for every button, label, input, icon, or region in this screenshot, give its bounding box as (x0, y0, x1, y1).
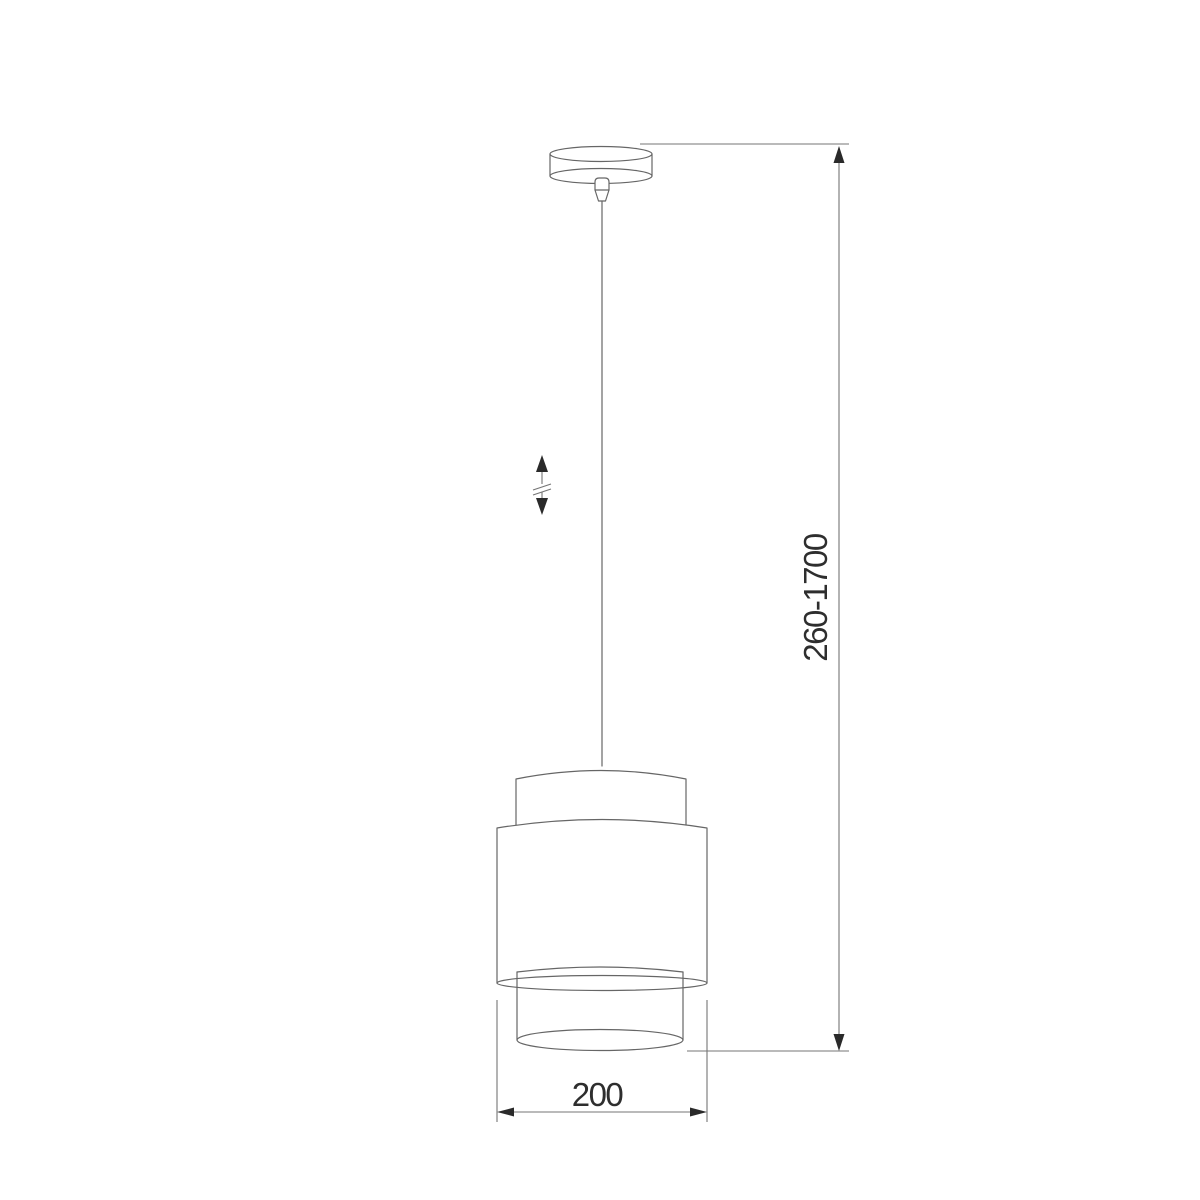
height-dimension-label: 260-1700 (797, 533, 834, 662)
drawing-canvas: 260-1700 (0, 0, 1200, 1200)
width-dim-arrow-left-icon (497, 1108, 514, 1117)
width-dimension: 200 (497, 1000, 707, 1122)
adjustment-arrow-up-icon (536, 455, 548, 472)
cord-grip (595, 178, 609, 201)
canopy-top-rim (550, 147, 652, 162)
adjustment-break-slash-top (533, 484, 551, 490)
pendant-lamp-dimension-drawing: 260-1700 (0, 0, 1200, 1200)
width-dimension-label: 200 (572, 1076, 624, 1113)
lampshade-inner-diffuser (517, 967, 683, 1051)
outer-drum-body (497, 820, 707, 984)
adjustment-arrow-down-icon (536, 498, 548, 515)
height-dim-arrow-down-icon (834, 1034, 845, 1051)
height-adjustment-arrow-icon (533, 455, 551, 515)
inner-diffuser-bottom-rim (517, 1030, 683, 1051)
inner-diffuser-top-rim (517, 967, 683, 972)
width-dim-arrow-right-icon (690, 1108, 707, 1117)
lampshade-outer-drum (497, 820, 707, 991)
height-dimension: 260-1700 (640, 144, 849, 1051)
lampshade-upper-drum (516, 771, 686, 826)
outer-drum-bottom-rim (497, 976, 707, 991)
height-dim-arrow-up-icon (834, 146, 845, 163)
